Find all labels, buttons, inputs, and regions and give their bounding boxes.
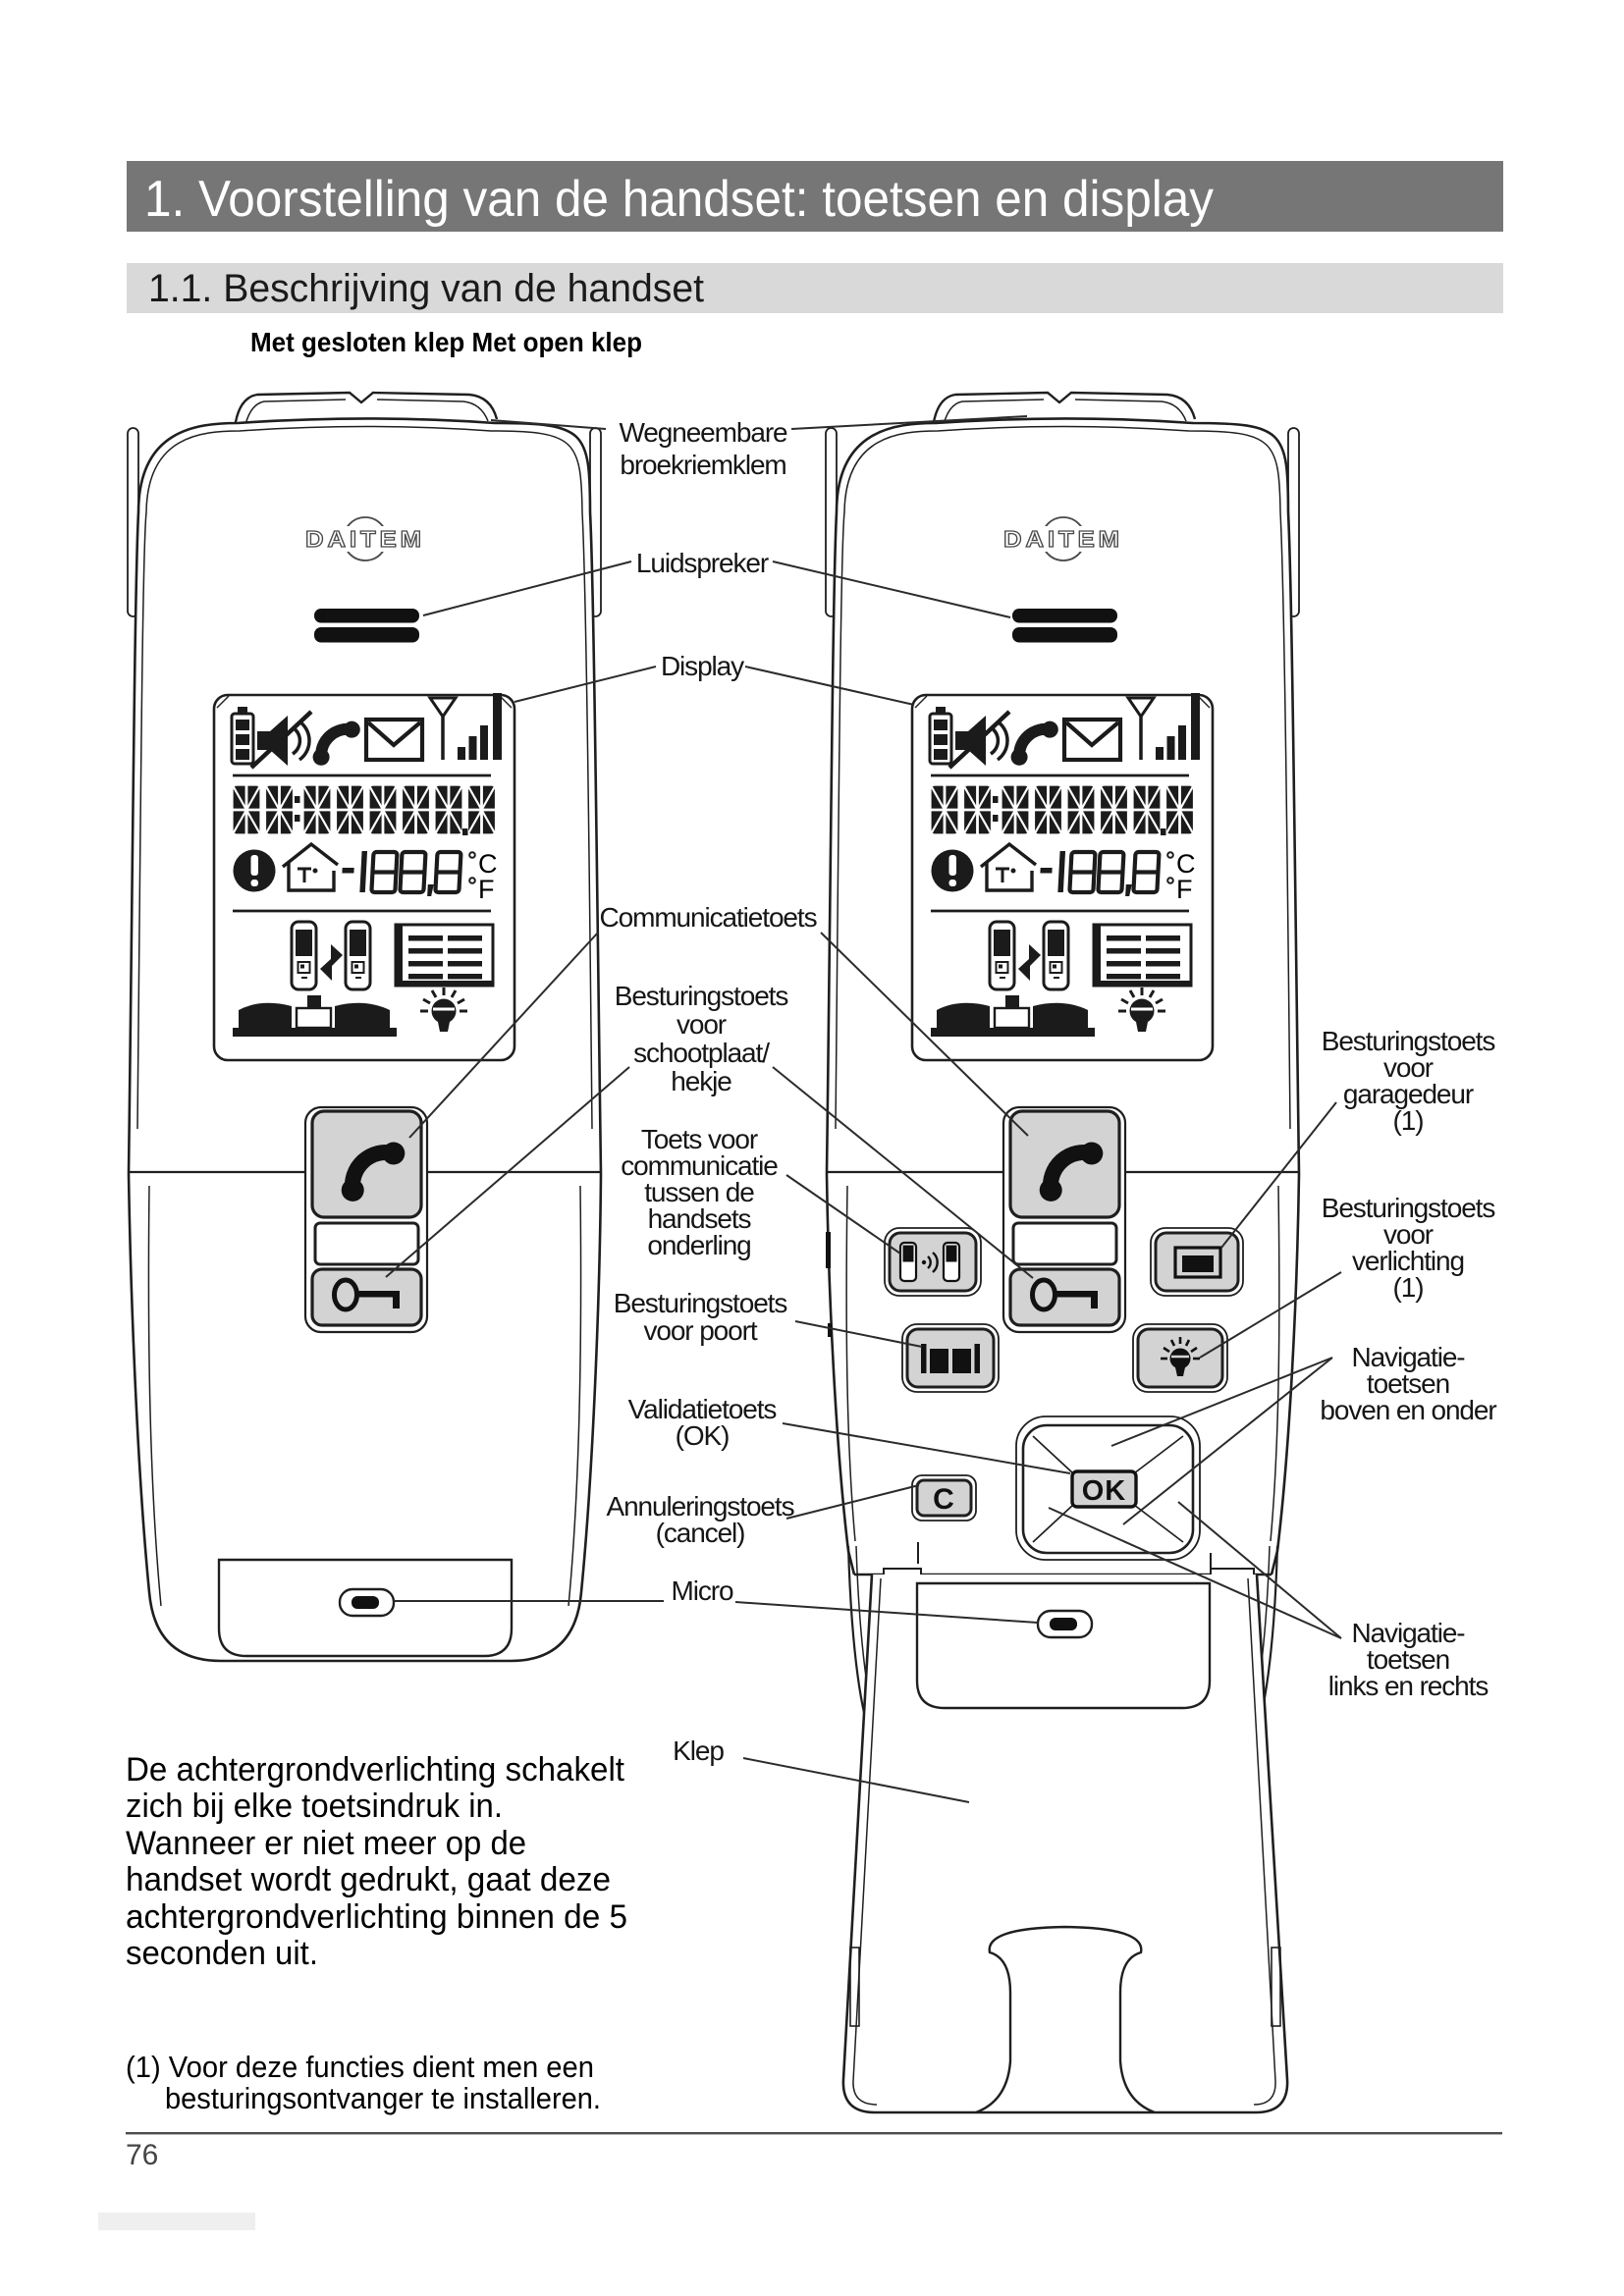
svg-text:(OK): (OK)	[676, 1420, 730, 1451]
svg-text:voor poort: voor poort	[643, 1315, 757, 1346]
svg-text:handset wordt gedrukt, gaat de: handset wordt gedrukt, gaat deze	[126, 1861, 611, 1898]
svg-text:Wegneembare: Wegneembare	[619, 417, 787, 448]
svg-text:76: 76	[126, 2139, 158, 2171]
svg-text:schootplaat/: schootplaat/	[633, 1038, 770, 1068]
svg-text:zich bij elke toetsindruk in.: zich bij elke toetsindruk in.	[126, 1788, 503, 1825]
svg-text:boven en onder: boven en onder	[1320, 1395, 1496, 1425]
svg-text:voor: voor	[677, 1009, 727, 1040]
svg-text:(1): (1)	[1393, 1272, 1424, 1303]
svg-text:links en rechts: links en rechts	[1328, 1671, 1489, 1701]
svg-text:hekje: hekje	[671, 1066, 731, 1096]
svg-text:Besturingstoets: Besturingstoets	[615, 981, 788, 1011]
svg-text:1. Voorstelling van de handset: 1. Voorstelling van de handset: toetsen …	[144, 171, 1214, 228]
svg-text:Display: Display	[661, 651, 744, 681]
svg-text:Met gesloten klep Met open kle: Met gesloten klep Met open klep	[250, 327, 642, 357]
svg-text:Besturingstoets: Besturingstoets	[614, 1288, 787, 1318]
svg-text:seconden uit.: seconden uit.	[126, 1935, 318, 1972]
svg-text:(1) Voor deze functies dient m: (1) Voor deze functies dient men een	[126, 2050, 594, 2084]
svg-text:Klep: Klep	[673, 1735, 724, 1766]
svg-text:(cancel): (cancel)	[656, 1518, 745, 1548]
svg-text:OK: OK	[1082, 1475, 1127, 1507]
svg-text:1.1. Beschrijving van de hands: 1.1. Beschrijving van de handset	[148, 267, 704, 310]
svg-text:C: C	[933, 1483, 954, 1516]
svg-text:onderling: onderling	[647, 1230, 750, 1260]
svg-text:Communicatietoets: Communicatietoets	[600, 902, 817, 933]
svg-text:(1): (1)	[1393, 1105, 1424, 1136]
svg-text:Luidspreker: Luidspreker	[636, 548, 769, 578]
svg-text:De achtergrondverlichting scha: De achtergrondverlichting schakelt	[126, 1751, 625, 1789]
svg-text:achtergrondverlichting binnen: achtergrondverlichting binnen de 5	[126, 1898, 627, 1936]
svg-text:broekriemklem: broekriemklem	[620, 450, 785, 480]
svg-text:Wanneer er niet meer op de: Wanneer er niet meer op de	[126, 1825, 526, 1862]
svg-text:besturingsontvanger te install: besturingsontvanger te installeren.	[165, 2081, 601, 2115]
svg-text:Micro: Micro	[672, 1575, 733, 1606]
